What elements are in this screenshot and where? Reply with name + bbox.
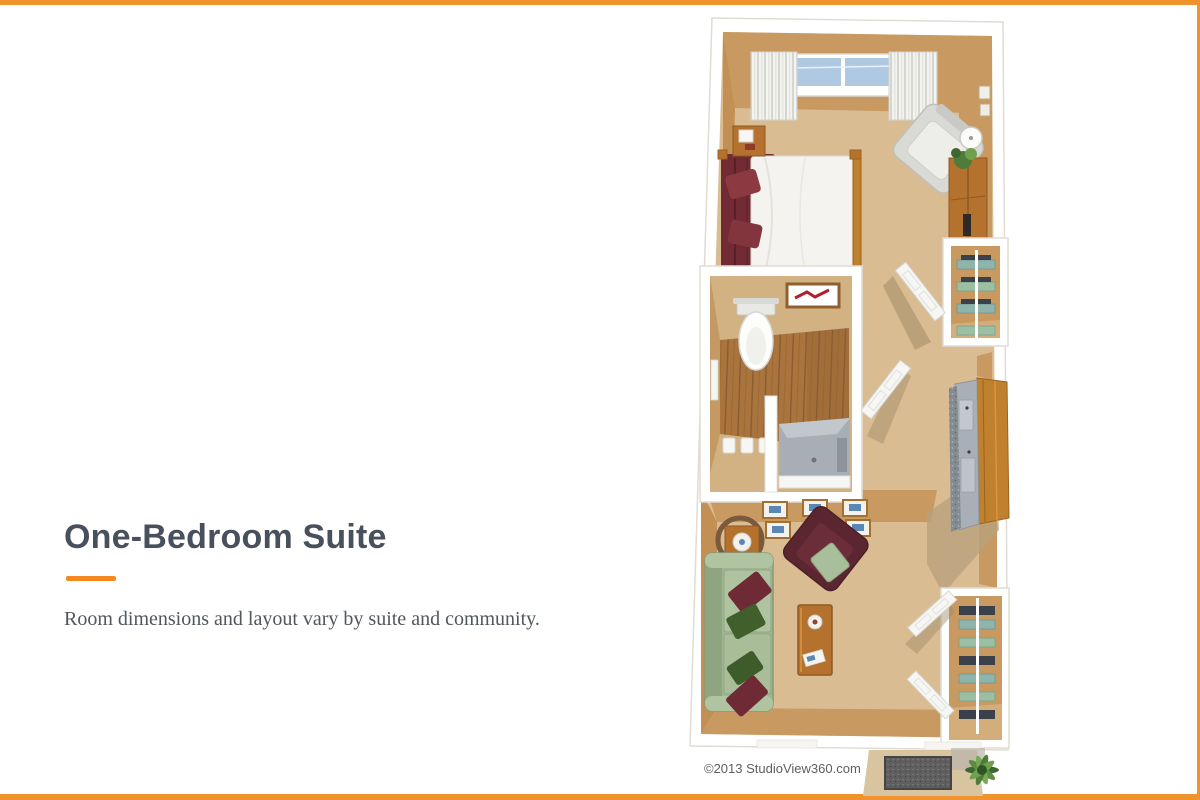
shower (779, 418, 850, 488)
kitchen-cabinet-wood (977, 378, 1009, 524)
page-content: One-Bedroom Suite Room dimensions and la… (0, 5, 1197, 794)
linen-closet (943, 238, 1008, 346)
doormat (885, 757, 951, 789)
page-frame: One-Bedroom Suite Room dimensions and la… (0, 0, 1200, 800)
page-title: One-Bedroom Suite (64, 518, 387, 557)
dresser (949, 158, 987, 242)
accent-rule (66, 576, 116, 581)
footboard (853, 152, 861, 278)
floor-lamp (960, 127, 982, 149)
bathroom (700, 266, 862, 502)
partition-wall (765, 396, 777, 492)
page-subtitle: Room dimensions and layout vary by suite… (64, 608, 540, 631)
closet-rod (975, 250, 978, 340)
floorplan-image (687, 8, 1023, 800)
nightstand (733, 126, 765, 156)
kitchenette (949, 378, 1009, 532)
sofa (705, 553, 773, 718)
threshold (757, 740, 817, 748)
curtain-left (751, 52, 797, 120)
wardrobe-rod (976, 598, 979, 734)
bathroom-wall-art (787, 284, 839, 307)
coffee-table (798, 605, 832, 675)
bed (718, 150, 861, 280)
